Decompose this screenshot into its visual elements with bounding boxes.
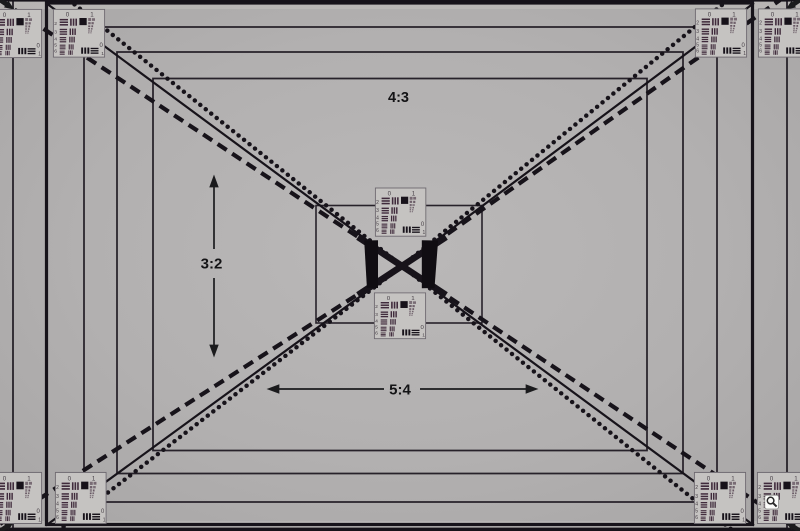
svg-text:5:4: 5:4 bbox=[389, 382, 411, 399]
svg-text:4:3: 4:3 bbox=[388, 90, 409, 106]
svg-text:3:2: 3:2 bbox=[201, 256, 223, 273]
